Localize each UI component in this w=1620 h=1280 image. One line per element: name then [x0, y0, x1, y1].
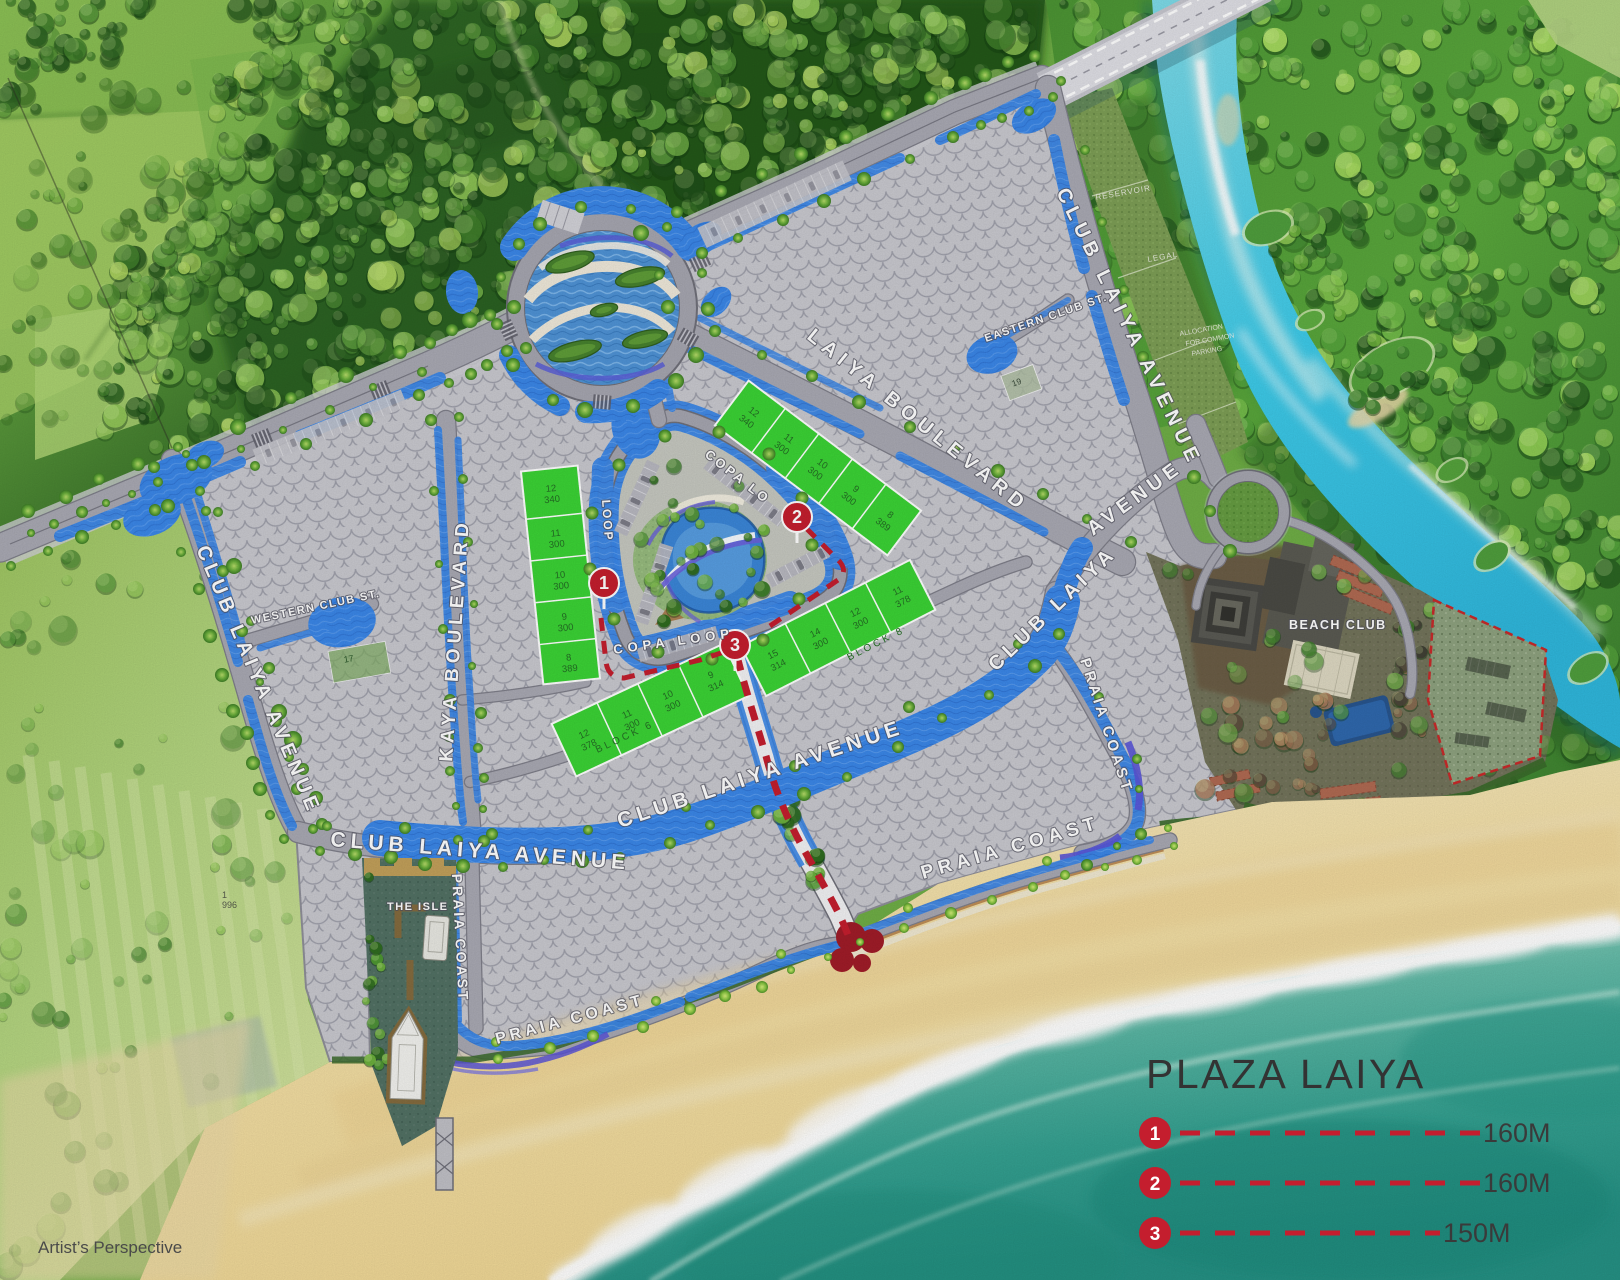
svg-text:1: 1	[1150, 1124, 1161, 1145]
svg-text:Artist’s Perspective: Artist’s Perspective	[38, 1238, 182, 1257]
svg-text:150M: 150M	[1443, 1218, 1511, 1248]
svg-text:2: 2	[1150, 1174, 1161, 1195]
svg-text:160M: 160M	[1483, 1118, 1551, 1148]
svg-text:3: 3	[1150, 1224, 1161, 1245]
svg-text:PLAZA LAIYA: PLAZA LAIYA	[1146, 1051, 1426, 1097]
svg-text:160M: 160M	[1483, 1168, 1551, 1198]
